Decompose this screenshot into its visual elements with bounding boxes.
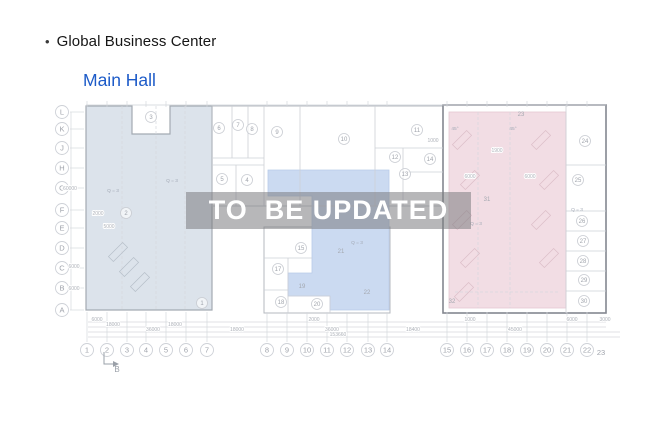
dimension-label: 1900 <box>491 148 502 154</box>
room-number: 24 <box>582 139 589 145</box>
page: LKJHGFEDCBA12345678910111213141516171819… <box>0 0 660 440</box>
section-marker-label: B <box>114 365 119 374</box>
room-number: 30 <box>581 299 588 305</box>
zone-middle-hall <box>268 170 389 310</box>
dimension-label: 153660 <box>330 332 347 338</box>
dimension-label: 6000 <box>91 317 102 323</box>
row-axis-label: B <box>59 284 64 293</box>
room-number: 27 <box>580 239 587 245</box>
dimension-label: 3000 <box>599 317 610 323</box>
room-number: 14 <box>427 157 434 163</box>
annotation-label: Q = 3 <box>166 178 178 184</box>
col-axis-label: 11 <box>323 346 331 355</box>
col-axis-label: 13 <box>364 346 372 355</box>
dimension-label: 6000 <box>566 317 577 323</box>
room-number: 13 <box>402 172 409 178</box>
dimension-label: 6000 <box>68 264 79 270</box>
hall-subtitle: Main Hall <box>83 70 156 91</box>
annotation-label: 45° <box>451 126 458 132</box>
col-axis-label: 5 <box>164 346 168 355</box>
col-axis-label: 14 <box>383 346 391 355</box>
dimension-label: 18000 <box>106 322 120 328</box>
col-axis-label: 23 <box>597 348 605 357</box>
row-axis-label: E <box>59 224 64 233</box>
dimension-label: 2000 <box>92 211 103 217</box>
room-number: 25 <box>575 178 582 184</box>
row-axis-label: D <box>59 244 65 253</box>
watermark-band: TO BE UPDATED <box>186 192 471 229</box>
title-row: • Global Business Center <box>45 33 216 50</box>
room-number: 15 <box>298 246 305 252</box>
col-axis-label: 17 <box>483 346 491 355</box>
room-number: 10 <box>341 137 348 143</box>
col-axis-label: 12 <box>343 346 351 355</box>
watermark-text: TO BE UPDATED <box>209 195 449 226</box>
col-axis-label: 19 <box>523 346 531 355</box>
room-number: 17 <box>275 267 282 273</box>
row-axis-label: H <box>59 164 64 173</box>
col-axis-label: 1 <box>85 346 89 355</box>
page-title: Global Business Center <box>57 33 217 50</box>
col-axis-label: 16 <box>463 346 471 355</box>
col-axis-label: 2 <box>105 346 109 355</box>
annotation-label: Q = 3 <box>107 188 119 194</box>
dimension-label: 18000 <box>168 322 182 328</box>
col-axis-label: 21 <box>563 346 571 355</box>
room-number: 23 <box>518 112 525 118</box>
col-axis-label: 18 <box>503 346 511 355</box>
annotation-label: Q = 3 <box>470 221 482 227</box>
row-axis-label: F <box>60 206 65 215</box>
room-number: 32 <box>449 299 456 305</box>
dimension-label: 1000 <box>427 138 438 144</box>
row-axis-label: J <box>60 144 64 153</box>
dimension-label: 18000 <box>230 327 244 333</box>
col-axis-label: 9 <box>285 346 289 355</box>
room-number: 12 <box>392 155 399 161</box>
col-axis-label: 15 <box>443 346 451 355</box>
dimension-label: 1000 <box>464 317 475 323</box>
annotation-label: Q = 3 <box>571 207 583 213</box>
room-number: 18 <box>278 300 285 306</box>
col-axis-label: 7 <box>205 346 209 355</box>
col-axis-label: 4 <box>144 346 148 355</box>
col-axis-label: 8 <box>265 346 269 355</box>
bullet-icon: • <box>45 35 50 48</box>
room-number: 29 <box>581 278 588 284</box>
room-number: 28 <box>580 259 587 265</box>
room-number: 11 <box>414 128 421 134</box>
dimension-label: 18400 <box>406 327 420 333</box>
row-axis-label: K <box>59 125 64 134</box>
dimension-label: 60000 <box>63 186 77 192</box>
annotation-label: 45° <box>509 126 516 132</box>
dimension-label: 6000 <box>68 286 79 292</box>
dimension-label: 36000 <box>146 327 160 333</box>
row-axis-label: L <box>60 108 64 117</box>
room-number: 31 <box>484 197 491 203</box>
room-number: 20 <box>314 302 321 308</box>
dimension-label: 6000 <box>464 174 475 180</box>
col-axis-label: 6 <box>184 346 188 355</box>
row-axis-label: A <box>59 306 64 315</box>
dimension-label: 6000 <box>524 174 535 180</box>
room-number: 26 <box>579 219 586 225</box>
dimension-label: 5000 <box>103 224 114 230</box>
room-number: 21 <box>338 249 345 255</box>
dimension-label: 2000 <box>308 317 319 323</box>
dimension-label: 45000 <box>508 327 522 333</box>
row-axis-label: C <box>59 264 65 273</box>
col-axis-label: 20 <box>543 346 551 355</box>
annotation-label: Q = 3 <box>351 240 363 246</box>
room-number: 19 <box>299 284 306 290</box>
room-number: 22 <box>364 290 371 296</box>
col-axis-label: 22 <box>583 346 591 355</box>
col-axis-label: 3 <box>125 346 129 355</box>
col-axis-label: 10 <box>303 346 311 355</box>
